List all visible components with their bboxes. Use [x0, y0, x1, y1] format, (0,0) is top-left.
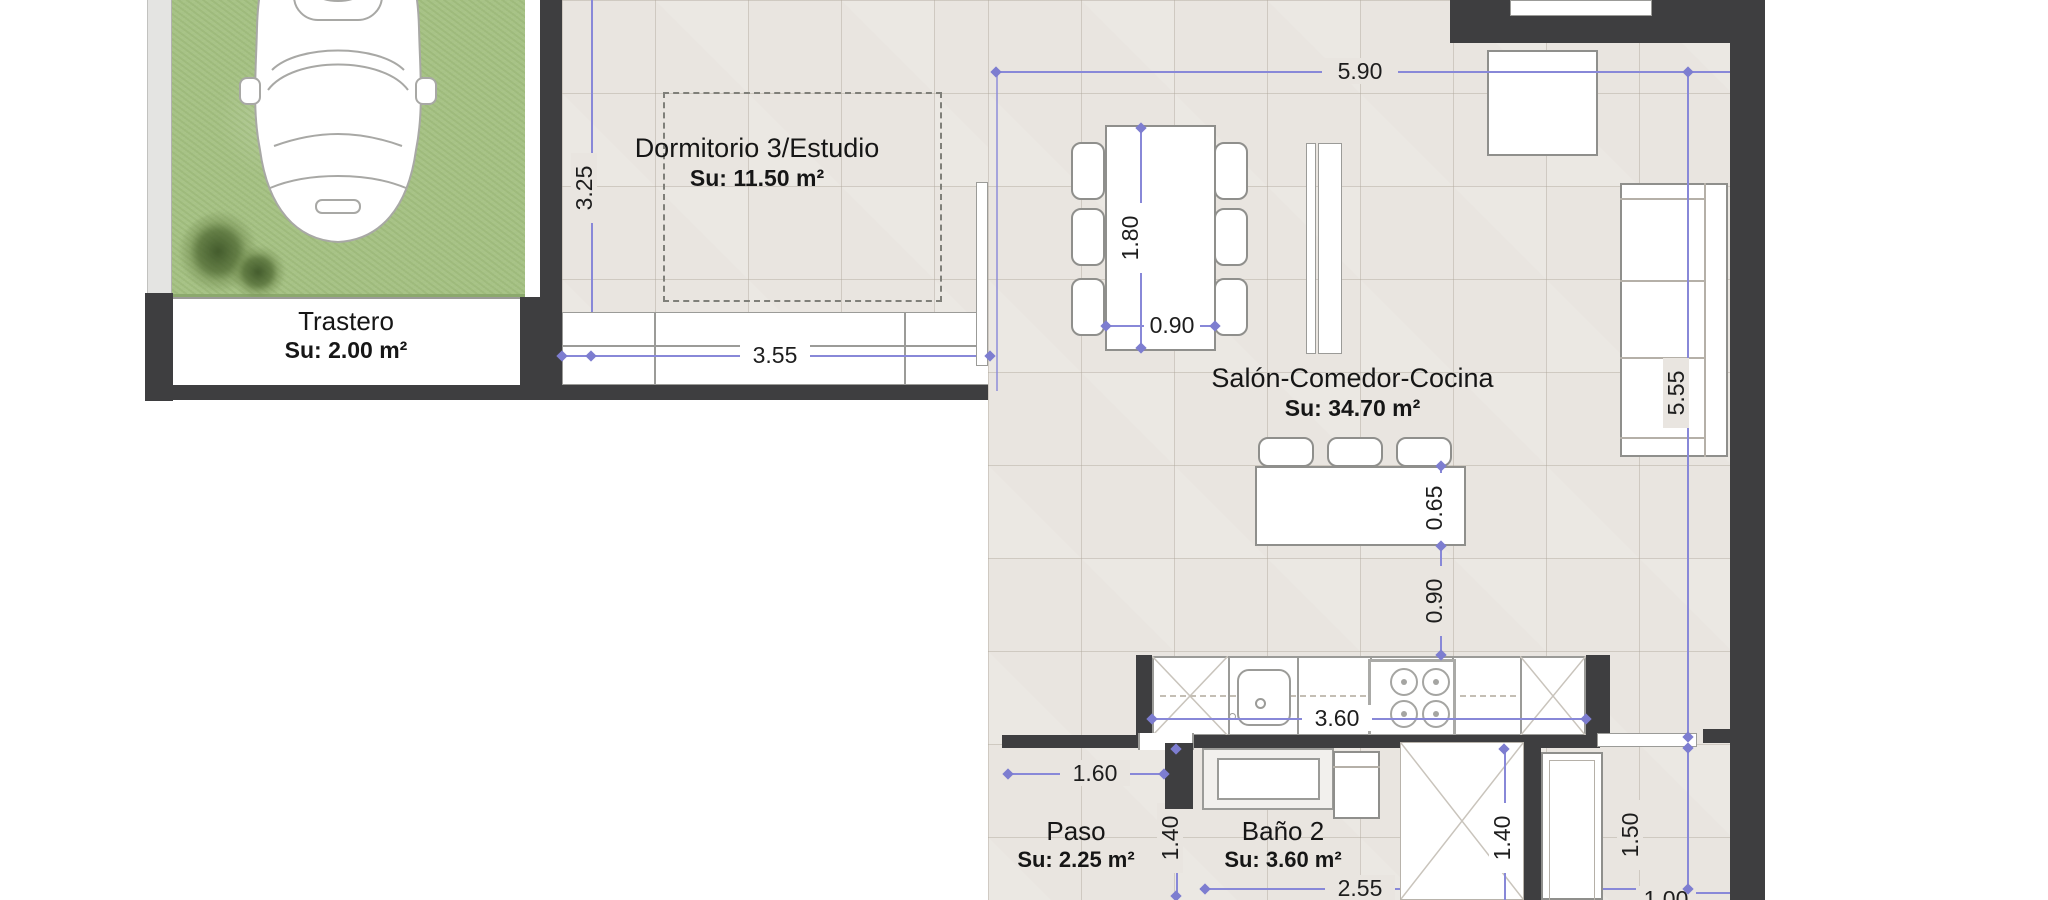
wall — [1730, 0, 1765, 900]
car-icon — [238, 0, 438, 262]
dimension-label: 2.55 — [1325, 875, 1395, 900]
door-leaf — [1597, 733, 1697, 747]
bathtub-basin — [1217, 758, 1320, 800]
dimension-extension-line — [996, 71, 998, 391]
wall — [1136, 655, 1152, 738]
washbasin-icon — [1333, 751, 1380, 819]
dimension-label: 1.50 — [1617, 800, 1643, 870]
dimension-label: 3.55 — [740, 342, 810, 368]
door-leaf — [976, 182, 988, 366]
room-area: Su: 2.00 m² — [172, 336, 520, 364]
room-label-paso: Paso Su: 2.25 m² — [996, 816, 1156, 874]
room-area: Su: 2.25 m² — [996, 846, 1156, 874]
dimension-label: 0.90 — [1421, 566, 1447, 636]
dimension-label: 5.55 — [1663, 358, 1689, 428]
sink-drain — [1255, 698, 1266, 709]
counter-centerline — [1160, 695, 1516, 697]
floor-plan: Trastero Su: 2.00 m² Dormitorio 3/Estudi… — [0, 0, 2048, 900]
wall — [145, 385, 1005, 400]
burner-dot — [1401, 711, 1407, 717]
dimension-label: 1.40 — [1157, 803, 1183, 873]
dimension-label: 0.90 — [1144, 312, 1200, 338]
room-name: Baño 2 — [1198, 816, 1368, 846]
window-mullion — [654, 312, 656, 385]
room-name: Trastero — [172, 306, 520, 336]
dimension-label: 1.80 — [1117, 203, 1143, 273]
chair-icon — [1071, 278, 1105, 336]
wall — [1194, 735, 1600, 748]
chair-icon — [1071, 142, 1105, 200]
room-area: Su: 34.70 m² — [1180, 394, 1525, 422]
room-label-bano2: Baño 2 Su: 3.60 m² — [1198, 816, 1368, 874]
room-label-salon: Salón-Comedor-Cocina Su: 34.70 m² — [1180, 362, 1525, 422]
room-area: Su: 3.60 m² — [1198, 846, 1368, 874]
cabinet-icon — [1318, 143, 1342, 354]
dimension-label: 3.60 — [1302, 705, 1372, 731]
room-label-dormitorio: Dormitorio 3/Estudio Su: 11.50 m² — [592, 132, 922, 192]
entry-door-inner — [1549, 760, 1595, 900]
room-name: Paso — [996, 816, 1156, 846]
dimension-label: 0.65 — [1421, 473, 1447, 543]
chair-icon — [1071, 208, 1105, 266]
burner-dot — [1401, 679, 1407, 685]
room-name: Salón-Comedor-Cocina — [1180, 362, 1525, 394]
wall — [1524, 748, 1541, 900]
dimension-label: 3.25 — [571, 153, 597, 223]
chair-icon — [1214, 142, 1248, 200]
burner-dot — [1433, 679, 1439, 685]
washbasin-divider — [1333, 766, 1380, 768]
dimension-line — [1687, 748, 1689, 900]
window-icon — [1510, 0, 1652, 16]
wall — [1165, 743, 1193, 809]
window-mullion — [904, 312, 906, 385]
sofa-backrest-line — [1704, 183, 1706, 457]
wall — [1703, 729, 1730, 743]
dimension-label: 1.60 — [1060, 760, 1130, 786]
dimension-label: 5.90 — [1322, 58, 1398, 84]
wall — [540, 0, 562, 400]
cabinet-cross-icon — [1520, 656, 1586, 736]
burner-dot — [1433, 711, 1439, 717]
cabinet-icon — [1306, 143, 1316, 354]
dimension-label: 1.40 — [1489, 803, 1515, 873]
sofa-cushion-line — [1620, 198, 1706, 200]
chair-icon — [1214, 208, 1248, 266]
room-area: Su: 11.50 m² — [592, 164, 922, 192]
sofa-cushion-line — [1620, 437, 1706, 439]
wall — [1586, 655, 1610, 738]
exterior-fence — [147, 0, 172, 297]
stool-icon — [1258, 437, 1314, 467]
room-name: Dormitorio 3/Estudio — [592, 132, 922, 164]
room-label-trastero: Trastero Su: 2.00 m² — [172, 306, 520, 364]
sofa-cushion-line — [1620, 280, 1706, 282]
fridge-icon — [1487, 50, 1598, 156]
dashed-room-outline — [663, 92, 942, 302]
wall — [1002, 735, 1138, 748]
stool-icon — [1327, 437, 1383, 467]
